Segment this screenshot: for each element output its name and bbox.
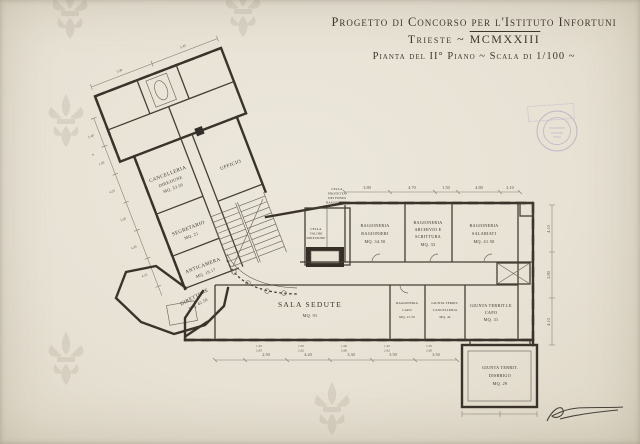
svg-text:CAPO: CAPO: [402, 308, 412, 312]
svg-text:PROTETTA: PROTETTA: [328, 192, 346, 196]
svg-text:CELLA: CELLA: [331, 187, 343, 191]
svg-text:CANCELLERIA: CANCELLERIA: [433, 308, 458, 312]
svg-text:4.20: 4.20: [304, 352, 312, 357]
svg-text:4.80: 4.80: [475, 185, 483, 190]
dimension-value: 5.40: [88, 133, 95, 139]
room-label-ragioneria-archivio: RAGIONERIA: [413, 220, 442, 225]
svg-text:DISBRIGO: DISBRIGO: [489, 373, 511, 378]
left-wing-walls: [95, 48, 297, 294]
svg-text:2.62: 2.62: [298, 349, 304, 353]
dimension-value: 4.30: [130, 244, 137, 250]
signature: [547, 407, 623, 421]
fleur-de-lis-icon: [49, 332, 84, 385]
right-wing-room-labels: RAGIONERIA RAGIONIERI MQ. 34.50 RAGIONER…: [278, 220, 518, 386]
ink-stamp: [528, 103, 577, 151]
svg-text:CAPO: CAPO: [485, 310, 497, 315]
svg-text:4.70: 4.70: [408, 185, 416, 190]
svg-text:4.10: 4.10: [546, 225, 551, 233]
svg-text:1.45: 1.45: [384, 344, 390, 348]
svg-text:VALORI: VALORI: [310, 232, 323, 236]
drawing-subtitle: Trieste ~ MCMXXIII: [316, 32, 632, 47]
svg-text:4.10: 4.10: [546, 318, 551, 326]
shaft-square: [497, 263, 530, 284]
drawing-scale-line: Pianta del II° Piano ~ Scala di 1/100 ~: [316, 51, 632, 62]
svg-text:1.45: 1.45: [256, 344, 262, 348]
title-block: Progetto di Concorso per l'Istituto Info…: [316, 15, 632, 62]
reference-mark: *: [92, 153, 94, 158]
svg-text:SCRITTURA: SCRITTURA: [415, 234, 441, 239]
svg-text:RAGIONIERI: RAGIONIERI: [361, 231, 389, 236]
drawing-title: Progetto di Concorso per l'Istituto Info…: [316, 15, 632, 30]
curved-colonnade: [227, 254, 297, 295]
room-label-ufficio: UFFICIO: [220, 159, 243, 172]
bottom-dimension-row: 2.50 4.20 3.30 3.50 3.50 1.45 2.65 1.05 …: [213, 344, 459, 362]
dimension-value: 1.50: [120, 216, 127, 222]
svg-text:SALARIATI: SALARIATI: [472, 231, 497, 236]
svg-text:MQ. 44: MQ. 44: [439, 315, 450, 319]
fleur-de-lis-icon: [315, 382, 350, 435]
room-label-giunta-cancelleria: GIUNTA TERRIT.: [431, 301, 458, 305]
svg-text:2.65: 2.65: [256, 349, 262, 353]
svg-text:MQ. 33: MQ. 33: [421, 242, 436, 247]
disbrigo-annex: [462, 340, 537, 417]
svg-text:2.60: 2.60: [426, 349, 432, 353]
floor-plan-drawing: 5.40 1.50 4.25 1.50 4.30 4.35 5.40 5.45 …: [0, 0, 640, 444]
right-wing: RAGIONERIA RAGIONIERI MQ. 34.50 RAGIONER…: [185, 203, 537, 417]
fleur-de-lis-watermarks: [49, 0, 350, 435]
svg-text:3.50: 3.50: [432, 352, 440, 357]
svg-text:2.60: 2.60: [341, 349, 347, 353]
svg-text:MQ. 31: MQ. 31: [484, 317, 499, 322]
svg-text:2.80: 2.80: [546, 271, 551, 279]
title-city: Trieste ~: [408, 32, 465, 46]
room-label-giunta-capo: GIUNTA TERRIT.LE: [470, 303, 512, 308]
top-block-stair: [146, 73, 177, 107]
svg-text:ARCHIVIO E: ARCHIVIO E: [414, 227, 441, 232]
dimension-value: 5.40: [116, 68, 123, 74]
svg-text:MQ. 15.50: MQ. 15.50: [399, 315, 415, 319]
svg-text:1.05: 1.05: [298, 344, 304, 348]
fleur-de-lis-icon: [49, 94, 84, 147]
svg-text:CELLA: CELLA: [310, 227, 322, 231]
right-dimension-column: 4.10 2.80 4.10: [546, 205, 555, 345]
room-label-giunta-disbrigo: GIUNTA TERRIT.: [482, 365, 518, 370]
title-year-roman: MCMXXIII: [470, 32, 541, 46]
svg-text:2.10: 2.10: [506, 185, 514, 190]
main-staircase: [209, 192, 286, 273]
room-label-sala-sedute: SALA SEDUTE: [278, 300, 342, 309]
svg-text:DEI FONDI: DEI FONDI: [328, 196, 346, 200]
svg-text:MQ. 41.50: MQ. 41.50: [474, 239, 495, 244]
svg-text:1.05: 1.05: [426, 344, 432, 348]
svg-text:1.06: 1.06: [341, 344, 347, 348]
svg-text:DIREZIONE: DIREZIONE: [307, 236, 326, 240]
room-label-ragioneria-ragionieri: RAGIONERIA: [360, 223, 389, 228]
dimension-value: 1.50: [98, 160, 105, 166]
svg-text:MQ. 91: MQ. 91: [303, 313, 318, 318]
dimension-value: 4.25: [109, 188, 116, 194]
door-mark: [194, 126, 204, 136]
svg-text:MQ. 34.50: MQ. 34.50: [365, 239, 386, 244]
scanned-drawing-sheet: Progetto di Concorso per l'Istituto Info…: [0, 0, 640, 444]
svg-text:MQ. 29: MQ. 29: [493, 381, 508, 386]
fleur-de-lis-icon: [226, 0, 261, 37]
room-label-ragioneria-capo: RAGIONERIA: [396, 301, 418, 305]
cella-valori-label: CELLA VALORI DIREZIONE: [307, 227, 326, 240]
svg-text:3.30: 3.30: [347, 352, 355, 357]
dimension-value: 4.35: [141, 272, 148, 278]
svg-text:3.50: 3.50: [389, 352, 397, 357]
svg-text:3.80: 3.80: [363, 185, 371, 190]
dimension-value: 5.45: [179, 43, 186, 49]
svg-text:1.50: 1.50: [442, 185, 450, 190]
director-bay: DIRETTORE MQ. 42.50: [116, 266, 239, 334]
room-label-ragioneria-salariati: RAGIONERIA: [469, 223, 498, 228]
fleur-de-lis-icon: [53, 0, 88, 39]
left-wing: 5.40 1.50 4.25 1.50 4.30 4.35 5.40 5.45 …: [69, 32, 297, 304]
svg-text:2.50: 2.50: [262, 352, 270, 357]
svg-text:2.62: 2.62: [384, 349, 390, 353]
top-dimension-row: 3.80 4.70 1.50 4.80 2.10: [343, 185, 522, 194]
